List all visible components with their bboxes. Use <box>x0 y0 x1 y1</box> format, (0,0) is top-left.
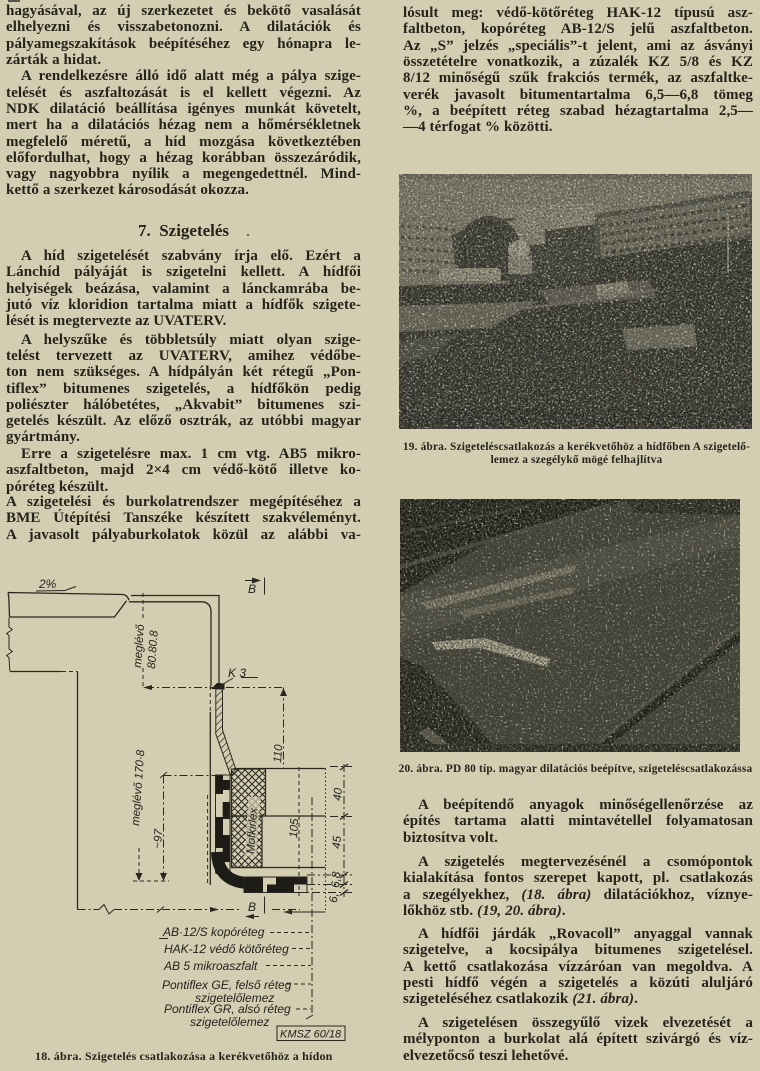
svg-text:~97: ~97 <box>152 828 165 849</box>
svg-text:80.80.8: 80.80.8 <box>146 629 161 669</box>
svg-text:45: 45 <box>331 835 344 849</box>
svg-text:KMSZ 60/18: KMSZ 60/18 <box>280 1029 342 1041</box>
svg-text:szigetelőlemez: szigetelőlemez <box>190 1015 269 1029</box>
svg-text:AB·12/S kopóréteg: AB·12/S kopóréteg <box>162 925 265 939</box>
svg-text:meglévő: meglévő <box>132 623 147 668</box>
svg-text:HAK-12 védő kötőréteg: HAK-12 védő kötőréteg <box>164 942 289 956</box>
svg-text:B: B <box>248 582 256 596</box>
svg-text:105: 105 <box>288 818 301 839</box>
svg-text:Pontiflex GR, alsó réteg: Pontiflex GR, alsó réteg <box>164 1002 291 1016</box>
svg-text:110: 110 <box>272 743 285 763</box>
svg-text:AB 5 mikroaszfalt: AB 5 mikroaszfalt <box>163 959 258 973</box>
svg-text:B: B <box>248 900 256 914</box>
svg-text:6,: 6, <box>328 893 341 903</box>
svg-text:Pontiflex GE, felső réteg: Pontiflex GE, felső réteg <box>162 978 292 992</box>
svg-text:6,8: 6,8 <box>330 871 343 888</box>
svg-text:meglévő 170·8: meglévő 170·8 <box>130 749 147 826</box>
svg-text:40: 40 <box>332 787 345 801</box>
svg-text:2%: 2% <box>38 577 57 591</box>
